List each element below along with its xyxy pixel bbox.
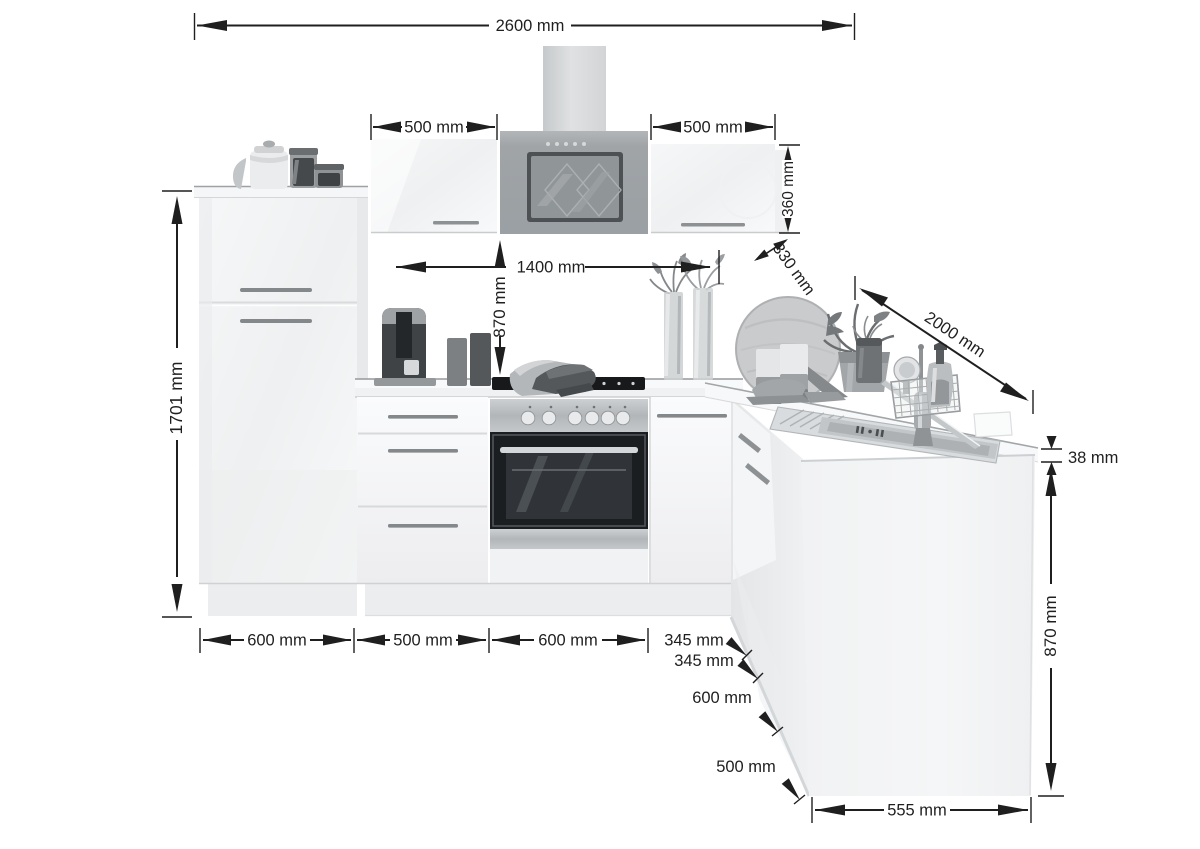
svg-text:1701 mm: 1701 mm xyxy=(166,362,186,435)
svg-text:600 mm: 600 mm xyxy=(692,689,752,707)
svg-text:2600 mm: 2600 mm xyxy=(496,17,565,35)
svg-text:500 mm: 500 mm xyxy=(683,119,743,137)
svg-text:500 mm: 500 mm xyxy=(404,119,464,137)
svg-text:360 mm: 360 mm xyxy=(780,161,797,217)
svg-text:500 mm: 500 mm xyxy=(393,632,453,650)
svg-text:555 mm: 555 mm xyxy=(887,802,947,820)
svg-text:1400 mm: 1400 mm xyxy=(517,259,586,277)
svg-text:38 mm: 38 mm xyxy=(1068,449,1118,467)
svg-text:870 mm: 870 mm xyxy=(1041,595,1060,656)
svg-text:870 mm: 870 mm xyxy=(490,276,509,337)
svg-text:500 mm: 500 mm xyxy=(716,758,776,776)
svg-text:345 mm: 345 mm xyxy=(674,652,734,670)
svg-text:600 mm: 600 mm xyxy=(538,632,598,650)
svg-text:345 mm: 345 mm xyxy=(664,632,724,650)
svg-text:600 mm: 600 mm xyxy=(247,632,307,650)
